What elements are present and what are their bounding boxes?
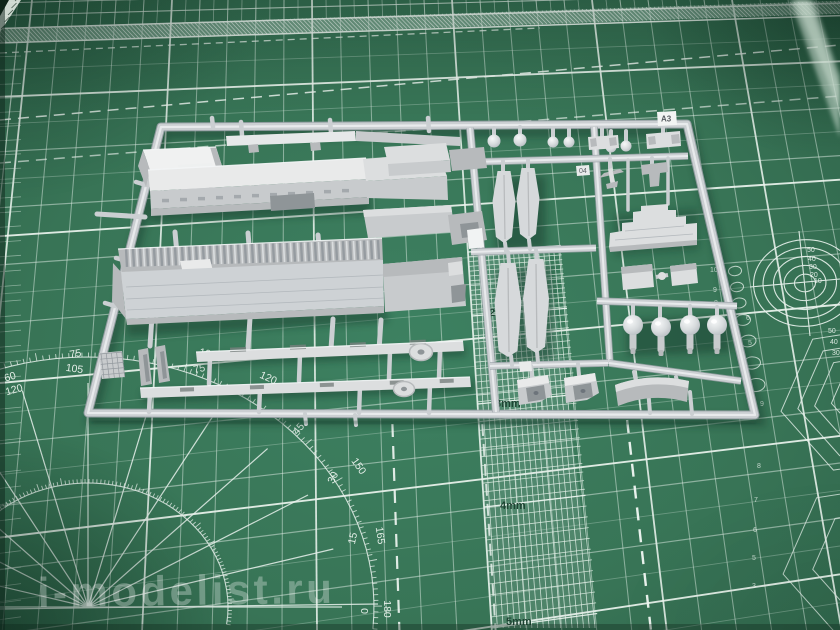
svg-text:i-modelist.ru: i-modelist.ru — [37, 565, 335, 616]
svg-text:105: 105 — [65, 362, 84, 376]
svg-text:10: 10 — [814, 278, 822, 285]
svg-text:6: 6 — [746, 315, 750, 322]
svg-text:180: 180 — [381, 600, 393, 618]
svg-text:165: 165 — [373, 526, 387, 545]
svg-text:8: 8 — [757, 463, 761, 470]
svg-text:50: 50 — [807, 247, 815, 254]
svg-text:75: 75 — [69, 347, 83, 361]
svg-text:30: 30 — [809, 264, 817, 271]
svg-text:50: 50 — [828, 328, 836, 335]
svg-text:40: 40 — [830, 339, 838, 346]
svg-text:30: 30 — [832, 350, 840, 357]
svg-text:40: 40 — [808, 256, 816, 263]
svg-text:9: 9 — [713, 287, 717, 294]
svg-text:A3: A3 — [661, 115, 672, 124]
svg-text:0: 0 — [358, 608, 370, 614]
svg-text:04: 04 — [579, 168, 587, 175]
svg-text:5: 5 — [748, 340, 752, 347]
svg-text:4mm: 4mm — [500, 500, 526, 512]
